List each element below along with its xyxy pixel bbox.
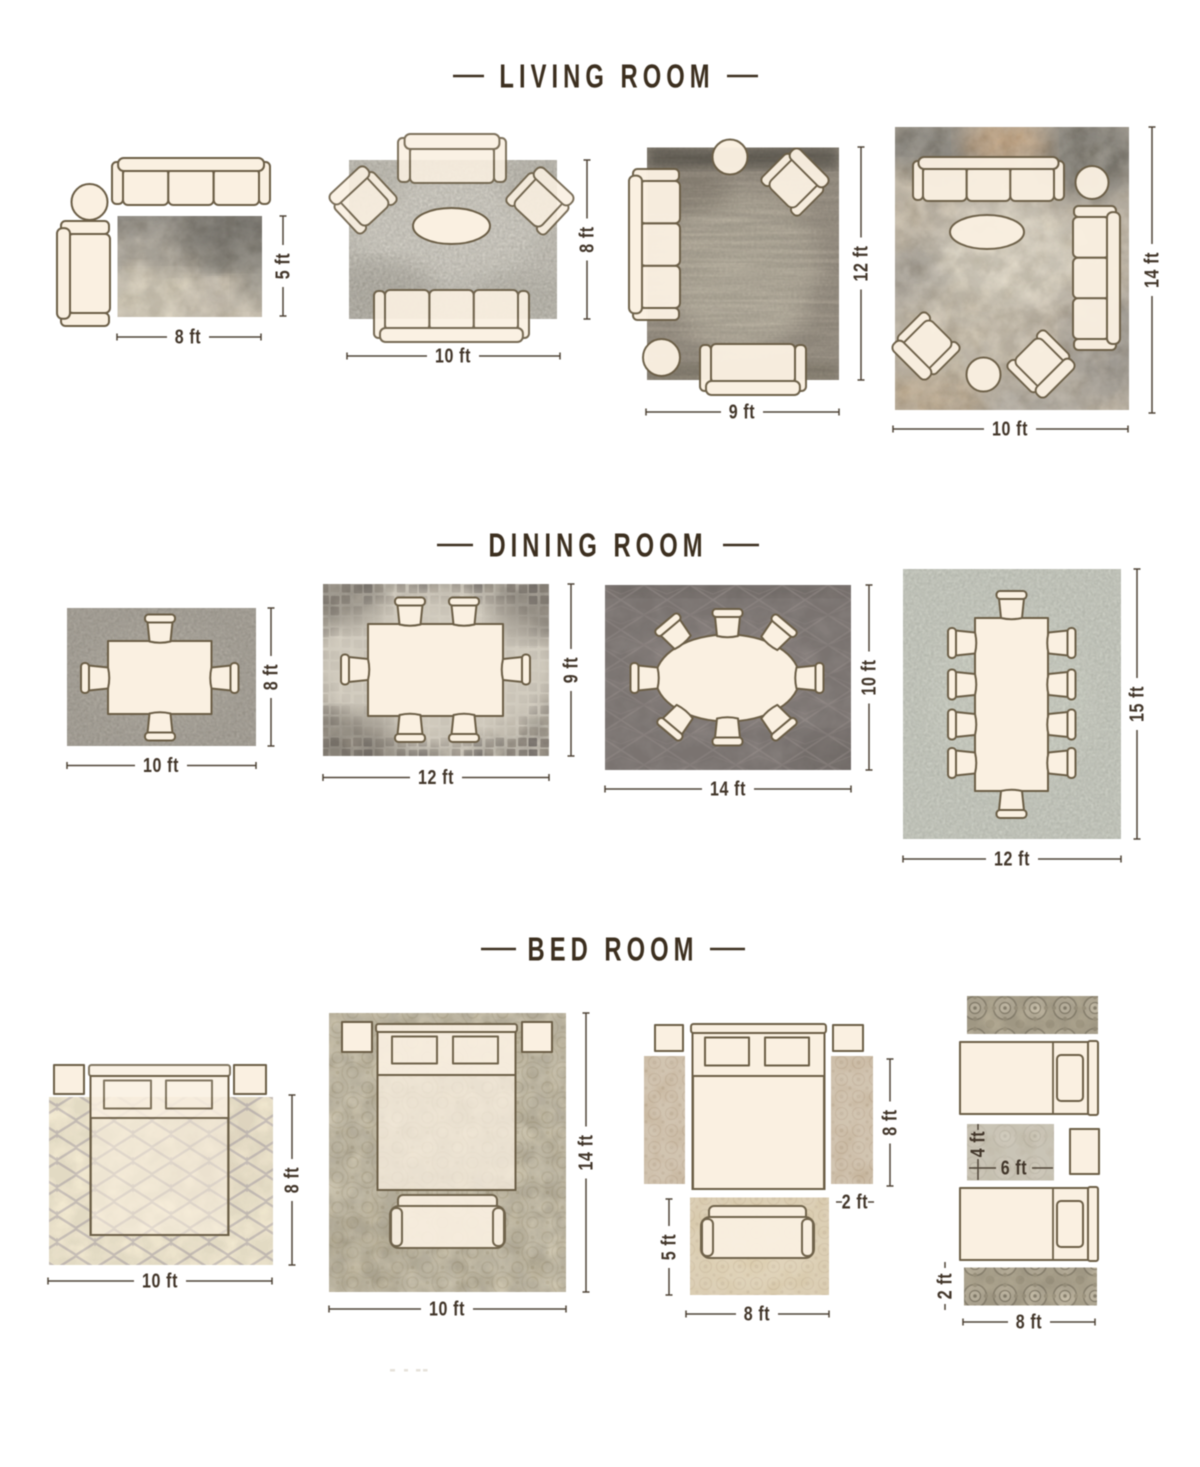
svg-text:8 ft: 8 ft: [576, 226, 598, 253]
svg-text:DINING ROOM: DINING ROOM: [488, 528, 707, 565]
svg-text:5 ft: 5 ft: [272, 253, 294, 280]
svg-text:12 ft: 12 ft: [418, 766, 454, 788]
svg-text:10 ft: 10 ft: [429, 1298, 465, 1320]
svg-text:4 ft: 4 ft: [967, 1131, 989, 1158]
svg-text:8 ft: 8 ft: [260, 664, 282, 691]
svg-text:6 ft: 6 ft: [1001, 1157, 1028, 1179]
svg-text:LIVING ROOM: LIVING ROOM: [499, 59, 714, 96]
svg-text:10 ft: 10 ft: [858, 659, 880, 695]
svg-text:BED ROOM: BED ROOM: [528, 932, 699, 969]
svg-text:14 ft: 14 ft: [710, 778, 746, 800]
svg-text:10 ft: 10 ft: [992, 418, 1028, 440]
svg-text:9 ft: 9 ft: [560, 657, 582, 684]
svg-text:14 ft: 14 ft: [575, 1134, 597, 1170]
svg-text:2 ft: 2 ft: [934, 1273, 956, 1300]
svg-text:8 ft: 8 ft: [879, 1109, 901, 1136]
svg-text:9 ft: 9 ft: [729, 401, 756, 423]
svg-text:8 ft: 8 ft: [281, 1167, 303, 1194]
svg-text:15 ft: 15 ft: [1126, 686, 1148, 722]
svg-text:8 ft: 8 ft: [744, 1303, 771, 1325]
svg-text:8 ft: 8 ft: [175, 326, 202, 348]
svg-text:8 ft: 8 ft: [1016, 1311, 1043, 1333]
svg-text:10 ft: 10 ft: [142, 1270, 178, 1292]
svg-text:2 ft: 2 ft: [842, 1191, 869, 1213]
svg-text:5 ft: 5 ft: [658, 1234, 680, 1261]
svg-text:10 ft: 10 ft: [435, 345, 471, 367]
svg-text:12 ft: 12 ft: [850, 245, 872, 281]
svg-text:12 ft: 12 ft: [994, 848, 1030, 870]
svg-text:14 ft: 14 ft: [1141, 252, 1163, 288]
svg-text:10 ft: 10 ft: [143, 754, 179, 776]
